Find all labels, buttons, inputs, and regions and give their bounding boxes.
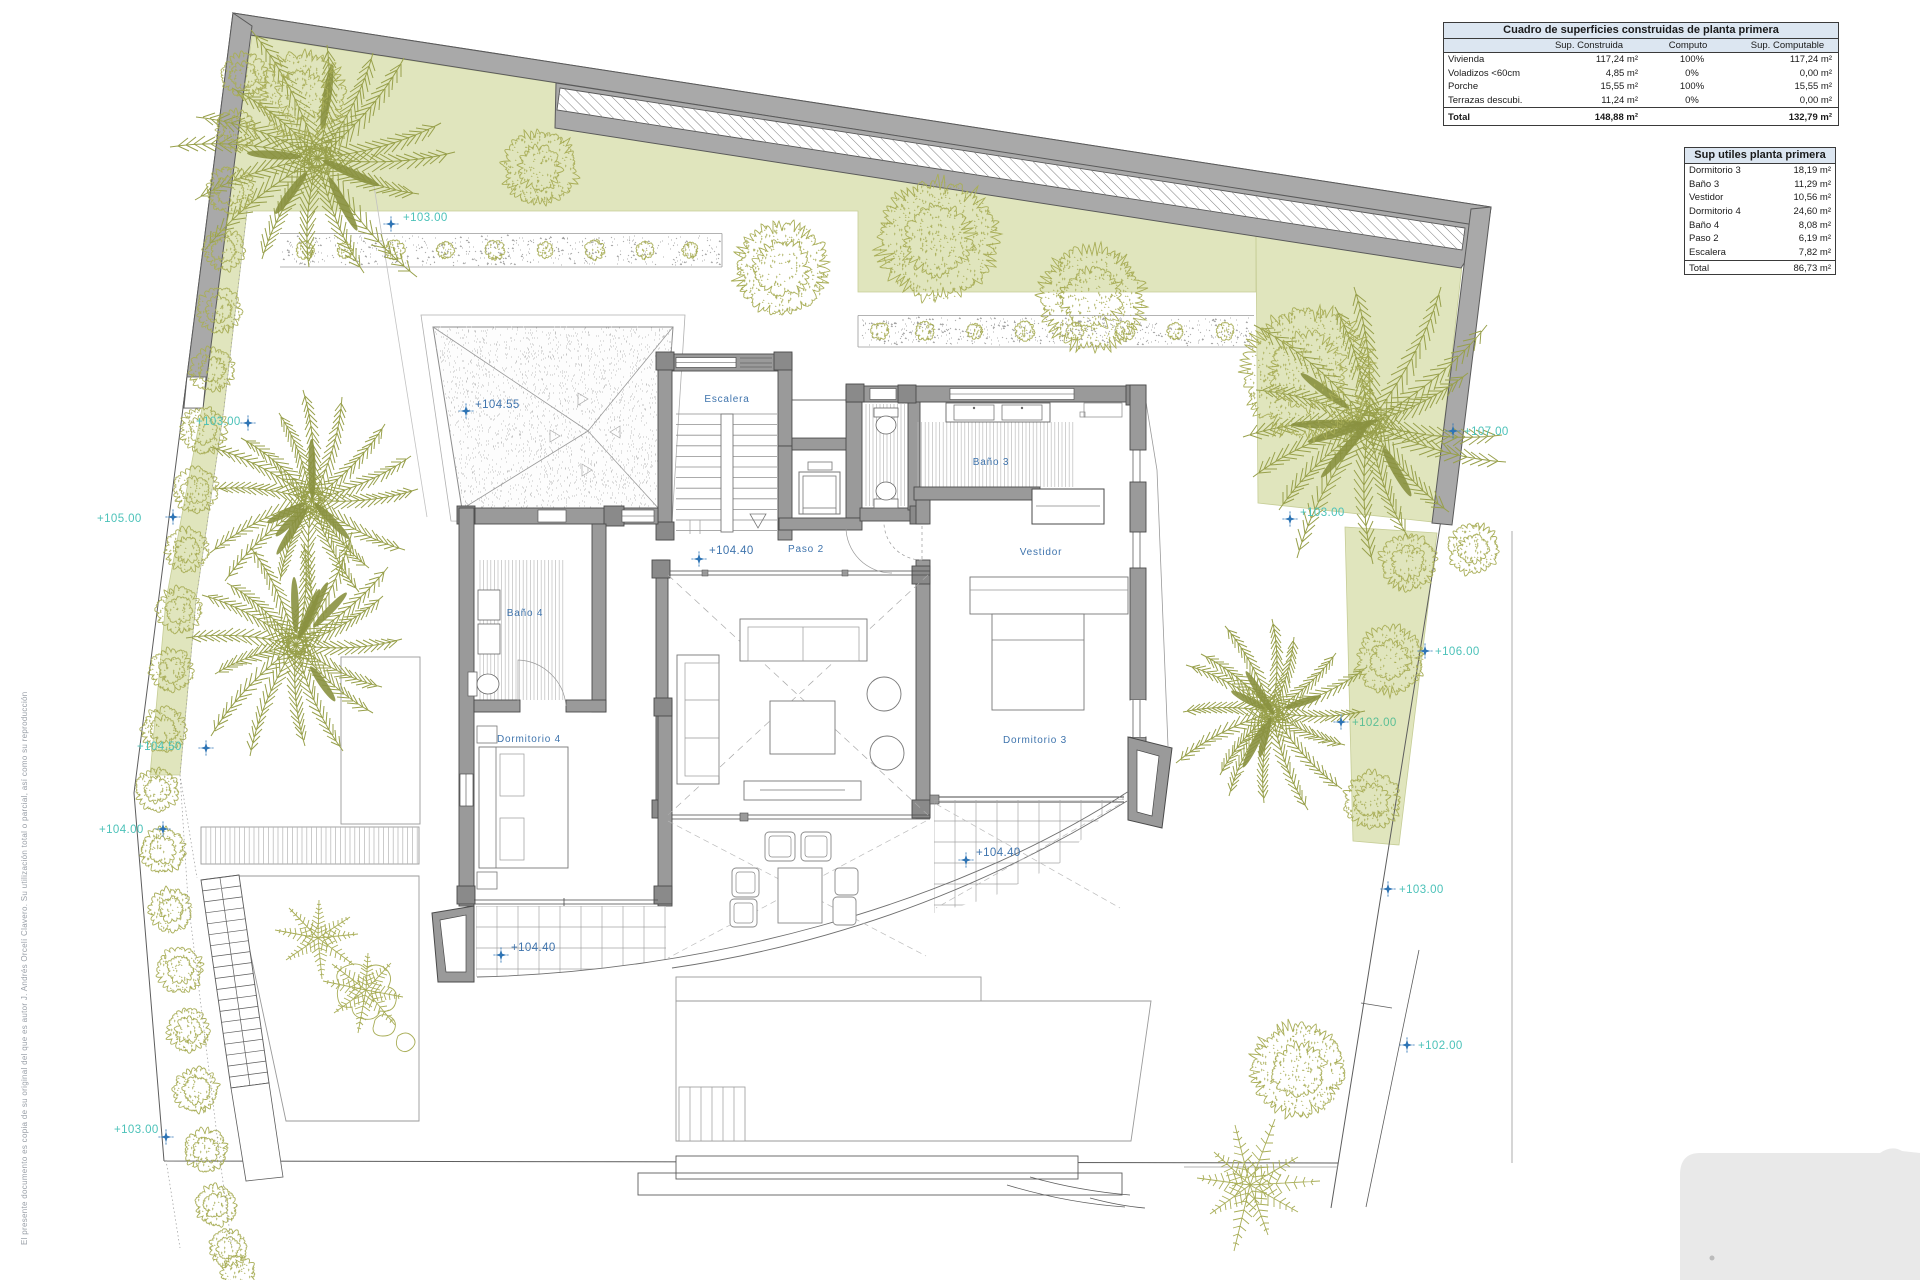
svg-text:+105.00: +105.00 <box>97 513 142 525</box>
svg-text:+104.55: +104.55 <box>475 399 520 411</box>
svg-text:El presente documento es copia: El presente documento es copia de su ori… <box>20 691 29 1245</box>
svg-text:+104.00: +104.00 <box>99 824 144 836</box>
svg-text:+106.00: +106.00 <box>1435 646 1480 658</box>
svg-text:Baño 4: Baño 4 <box>507 608 544 619</box>
svg-text:+102.00: +102.00 <box>1352 717 1397 729</box>
svg-text:+104.50: +104.50 <box>137 741 182 753</box>
svg-text:+103.00: +103.00 <box>196 416 241 428</box>
svg-text:+103.00: +103.00 <box>114 1124 159 1136</box>
svg-text:+104.40: +104.40 <box>709 545 754 557</box>
svg-text:Dormitorio 4: Dormitorio 4 <box>497 734 561 745</box>
svg-text:+104.40: +104.40 <box>976 847 1021 859</box>
svg-text:Paso 2: Paso 2 <box>788 544 824 555</box>
svg-text:Vestidor: Vestidor <box>1020 547 1063 558</box>
svg-text:+102.00: +102.00 <box>1418 1040 1463 1052</box>
svg-text:+103.00: +103.00 <box>1300 507 1345 519</box>
svg-text:+107.00: +107.00 <box>1464 426 1509 438</box>
svg-text:+103.00: +103.00 <box>1399 884 1444 896</box>
svg-text:+104.40: +104.40 <box>511 942 556 954</box>
svg-text:Escalera: Escalera <box>704 394 749 405</box>
svg-text:Dormitorio 3: Dormitorio 3 <box>1003 735 1067 746</box>
svg-text:Baño 3: Baño 3 <box>973 457 1010 468</box>
svg-text:+103.00: +103.00 <box>403 212 448 224</box>
